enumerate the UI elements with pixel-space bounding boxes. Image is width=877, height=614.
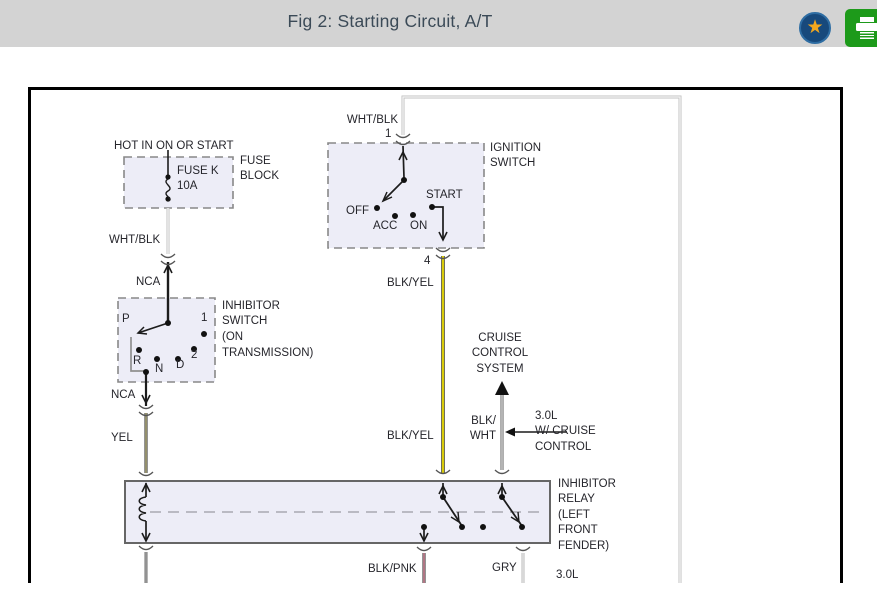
wire-label-wht-blk-top: WHT/BLK [336,114,398,127]
relay-label-line-5: FENDER) [558,539,616,554]
cruise-line-3: SYSTEM [455,362,545,377]
cruise-note-label: 3.0L W/ CRUISE CONTROL [535,409,596,455]
fuse-hot-label: HOT IN ON OR START [114,140,233,153]
cruise-line-2: CONTROL [455,346,545,361]
wire-label-blk-yel-1: BLK/YEL [387,277,434,290]
print-button[interactable] [845,9,877,47]
blk-wht-line-1: BLK/ [440,414,496,429]
cruise-note-line-2: W/ CRUISE [535,424,596,439]
page-title: Fig 2: Starting Circuit, A/T [0,11,780,32]
relay-label-line-3: (LEFT [558,508,616,523]
fuse-rating-label: 10A [177,180,197,193]
relay-label-line-4: FRONT [558,523,616,538]
wire-label-blk-pnk: BLK/PNK [368,563,417,576]
title-bar: Fig 2: Starting Circuit, A/T ★ [0,0,877,47]
inhibitor-pos-r: R [133,355,141,368]
relay-label-line-1: INHIBITOR [558,477,616,492]
cruise-control-label: CRUISE CONTROL SYSTEM [455,331,545,377]
inhibitor-pos-p: P [122,313,130,326]
inhibitor-relay-label: INHIBITOR RELAY (LEFT FRONT FENDER) [558,477,616,554]
ignition-pos-start: START [426,189,463,202]
wire-label-gry: GRY [492,562,517,575]
inhibitor-pos-n: N [155,363,163,376]
wire-label-yel: YEL [111,432,133,445]
inhibitor-pos-d: D [176,359,184,372]
ignition-label-2: SWITCH [490,157,535,170]
ignition-pin-4: 4 [424,255,430,268]
ignition-pos-acc: ACC [373,220,397,233]
inhibitor-pos-1: 1 [201,312,207,325]
fuse-block-label-2: BLOCK [240,170,279,183]
inhibitor-pos-2: 2 [191,349,197,362]
ignition-pin-1: 1 [385,128,391,141]
inhibitor-switch-label-2: SWITCH [222,315,267,328]
ignition-pos-on: ON [410,220,427,233]
diagram-frame [28,87,843,583]
wire-label-blk-yel-2: BLK/YEL [387,430,434,443]
fuse-name-label: FUSE K [177,165,219,178]
printer-icon [854,16,877,40]
wire-label-blk-wht: BLK/ WHT [440,414,496,445]
cruise-line-1: CRUISE [455,331,545,346]
star-icon: ★ [806,18,823,37]
cruise-note-line-3: CONTROL [535,440,596,455]
wire-label-nca-1: NCA [136,276,160,289]
inhibitor-switch-label-4: TRANSMISSION) [222,347,313,360]
relay-note-30l: 3.0L [556,569,578,582]
fuse-block-label-1: FUSE [240,155,271,168]
favorite-button[interactable]: ★ [799,12,831,44]
cruise-note-line-1: 3.0L [535,409,596,424]
wire-label-nca-2: NCA [111,389,135,402]
ignition-label-1: IGNITION [490,142,541,155]
ignition-pos-off: OFF [346,205,369,218]
page: { "header": { "title": "Fig 2: Starting … [0,0,877,614]
relay-label-line-2: RELAY [558,492,616,507]
inhibitor-switch-label-1: INHIBITOR [222,300,280,313]
blk-wht-line-2: WHT [440,429,496,444]
inhibitor-switch-label-3: (ON [222,331,243,344]
wire-label-wht-blk-left: WHT/BLK [109,234,160,247]
